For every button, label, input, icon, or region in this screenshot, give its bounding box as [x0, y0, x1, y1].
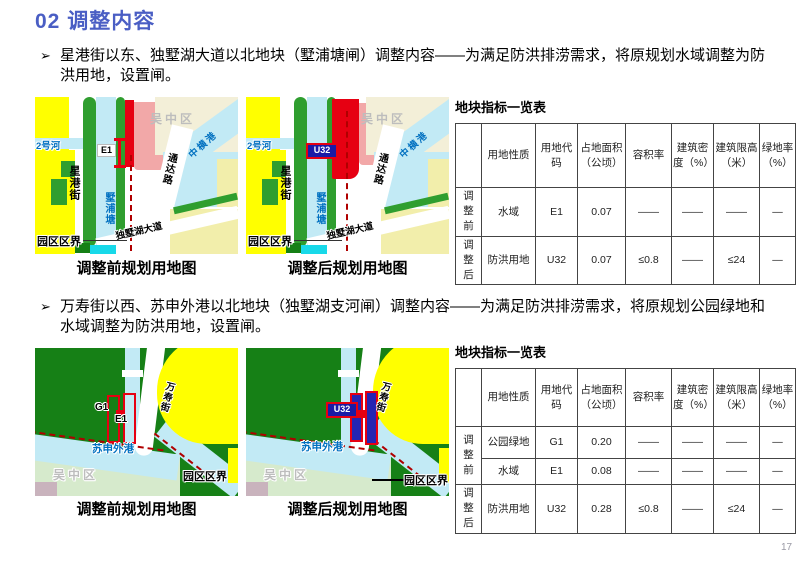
cell-density: —— — [672, 459, 714, 485]
green-band — [294, 97, 307, 247]
shupu-pond-label: 墅浦塘 — [312, 192, 327, 225]
cell-density: —— — [672, 485, 714, 534]
shupu-pond-label: 墅浦塘 — [101, 192, 116, 225]
cell-area: 0.28 — [578, 485, 626, 534]
map-caption: 调整后规划用地图 — [246, 498, 449, 519]
cell-area: 0.20 — [578, 427, 626, 459]
label-connector-line — [83, 240, 127, 241]
cell-density: —— — [672, 427, 714, 459]
plot-code-label: E1 — [97, 144, 116, 157]
gate-marker — [114, 165, 126, 168]
park-boundary-label: 园区区界 — [404, 472, 448, 488]
slide: { "slide": { "title": "02 调整内容", "page_n… — [0, 0, 800, 566]
wuzhong-district-label: 吴中区 — [53, 466, 98, 483]
cyan-water-strip — [90, 245, 116, 254]
header-cell: 用地性质 — [482, 369, 536, 427]
header-cell: 建筑限高（米） — [714, 124, 760, 188]
plot-code-label: G1 — [95, 402, 108, 413]
page-title: 02 调整内容 — [35, 5, 155, 35]
landuse-yellow-block — [228, 448, 238, 483]
indicator-table-2: 地块指标一览表 用地性质 用地代码 占地面积（公顷） 容积率 建筑密度（%） 建… — [455, 342, 796, 534]
green-band — [116, 97, 125, 239]
header-cell: 建筑限高（米） — [714, 369, 760, 427]
xinggang-street-label: 星港街 — [66, 165, 82, 201]
bridge-gap — [338, 370, 359, 377]
plot-code-box: U32 — [326, 402, 358, 418]
cell-code: U32 — [536, 236, 578, 285]
stage-cell: 调整前 — [456, 427, 482, 485]
river2-label: 2号河 — [36, 138, 60, 152]
cell-far: —— — [626, 188, 672, 237]
table-row: 调整前 水域 E1 0.07 —— —— —— — — [456, 188, 796, 237]
map-caption: 调整前规划用地图 — [35, 257, 238, 278]
header-cell: 建筑密度（%） — [672, 369, 714, 427]
header-cell: 占地面积（公顷） — [578, 124, 626, 188]
table-header-row: 用地性质 用地代码 占地面积（公顷） 容积率 建筑密度（%） 建筑限高（米） 绿… — [456, 369, 796, 427]
cell-area: 0.07 — [578, 236, 626, 285]
cell-green: — — [760, 485, 796, 534]
stage-cell: 调整后 — [456, 236, 482, 285]
cell-limit: —— — [714, 427, 760, 459]
stage-text: 调整后 — [463, 238, 475, 284]
header-cell — [456, 369, 482, 427]
header-cell: 用地代码 — [536, 124, 578, 188]
cell-code: E1 — [536, 459, 578, 485]
wuzhong-district-label: 吴中区 — [264, 466, 309, 483]
bullet-2-text: 万寿街以西、苏申外港以北地块（独墅湖支河闸）调整内容——为满足防洪排涝需求，将原… — [40, 297, 778, 337]
cell-density: —— — [672, 188, 714, 237]
map-before-shupu: E1 2号河 星港街 墅浦塘 吴中区 中横港 通达路 独墅湖大道 园区区界 — [35, 97, 238, 254]
cyan-water-strip — [301, 245, 327, 254]
gate-marker — [358, 410, 366, 418]
cell-density: —— — [672, 236, 714, 285]
bridge-gap — [122, 370, 143, 377]
cell-green: — — [760, 459, 796, 485]
header-cell: 用地性质 — [482, 124, 536, 188]
gate-marker — [118, 138, 121, 168]
header-cell: 用地代码 — [536, 369, 578, 427]
cell-far: —— — [626, 427, 672, 459]
cell-limit: —— — [714, 459, 760, 485]
wuzhong-district-label: 吴中区 — [361, 110, 406, 127]
bullet-1: ➢ 星港街以东、独墅湖大道以北地块（墅浦塘闸）调整内容——为满足防洪排涝需求，将… — [40, 46, 778, 86]
cell-far: ≤0.8 — [626, 236, 672, 285]
cell-green: — — [760, 188, 796, 237]
stage-cell: 调整前 — [456, 188, 482, 237]
header-cell — [456, 124, 482, 188]
mauve-block — [246, 482, 268, 496]
park-boundary-label: 园区区界 — [37, 233, 81, 249]
table-title: 地块指标一览表 — [455, 97, 796, 116]
stage-text: 调整前 — [463, 189, 475, 235]
header-cell: 容积率 — [626, 124, 672, 188]
cell-limit: —— — [714, 188, 760, 237]
stage-text: 调整后 — [463, 486, 475, 532]
arrow-bullet-icon: ➢ — [40, 297, 51, 317]
cell-nature: 防洪用地 — [482, 485, 536, 534]
cell-limit: ≤24 — [714, 236, 760, 285]
cell-nature: 防洪用地 — [482, 236, 536, 285]
sushen-canal-label: 苏申外港 — [92, 441, 134, 456]
cell-nature: 水域 — [482, 459, 536, 485]
page-number: 17 — [781, 542, 792, 553]
header-cell: 建筑密度（%） — [672, 124, 714, 188]
stage-cell: 调整后 — [456, 485, 482, 534]
map-caption: 调整后规划用地图 — [246, 257, 449, 278]
map-caption: 调整前规划用地图 — [35, 498, 238, 519]
cell-nature: 公园绿地 — [482, 427, 536, 459]
plot-code-box: U32 — [306, 143, 338, 159]
table-title: 地块指标一览表 — [455, 342, 796, 361]
cell-limit: ≤24 — [714, 485, 760, 534]
park-boundary-label: 园区区界 — [183, 468, 227, 484]
map-after-shupu: U32 2号河 星港街 墅浦塘 吴中区 中横港 通达路 独墅湖大道 园区区界 — [246, 97, 449, 254]
green-patch — [262, 179, 278, 205]
header-cell: 绿地率（%） — [760, 124, 796, 188]
label-connector-line — [372, 479, 404, 481]
cell-nature: 水域 — [482, 188, 536, 237]
header-cell: 占地面积（公顷） — [578, 369, 626, 427]
stage-text: 调整前 — [463, 433, 475, 479]
label-connector-line — [294, 240, 342, 241]
cell-area: 0.08 — [578, 459, 626, 485]
wuzhong-district-label: 吴中区 — [150, 110, 195, 127]
table-row: 调整前 公园绿地 G1 0.20 —— —— —— — — [456, 427, 796, 459]
river2-label: 2号河 — [247, 138, 271, 152]
arrow-bullet-icon: ➢ — [40, 46, 51, 66]
table-row: 调整后 防洪用地 U32 0.28 ≤0.8 —— ≤24 — — [456, 485, 796, 534]
table-row: 水域 E1 0.08 —— —— —— — — [456, 459, 796, 485]
cell-far: —— — [626, 459, 672, 485]
table-row: 调整后 防洪用地 U32 0.07 ≤0.8 —— ≤24 — — [456, 236, 796, 285]
cell-area: 0.07 — [578, 188, 626, 237]
sushen-canal-label: 苏申外港 — [301, 439, 343, 454]
bullet-2: ➢ 万寿街以西、苏申外港以北地块（独墅湖支河闸）调整内容——为满足防洪排涝需求，… — [40, 297, 778, 337]
header-cell: 容积率 — [626, 369, 672, 427]
mauve-block — [35, 482, 57, 496]
indicator-table-1: 地块指标一览表 用地性质 用地代码 占地面积（公顷） 容积率 建筑密度（%） 建… — [455, 97, 796, 285]
table-header-row: 用地性质 用地代码 占地面积（公顷） 容积率 建筑密度（%） 建筑限高（米） 绿… — [456, 124, 796, 188]
park-boundary-label: 园区区界 — [248, 233, 292, 249]
cell-green: — — [760, 427, 796, 459]
green-band — [83, 97, 96, 247]
map-after-sushen: U32 万寿街 苏申外港 吴中区 园区区界 — [246, 348, 449, 496]
map-before-sushen: G1 E1 万寿街 苏申外港 吴中区 园区区界 — [35, 348, 238, 496]
cell-green: — — [760, 236, 796, 285]
xinggang-street-label: 星港街 — [277, 165, 293, 201]
header-cell: 绿地率（%） — [760, 369, 796, 427]
cell-code: E1 — [536, 188, 578, 237]
bullet-1-text: 星港街以东、独墅湖大道以北地块（墅浦塘闸）调整内容——为满足防洪排涝需求，将原规… — [40, 46, 778, 86]
cell-code: G1 — [536, 427, 578, 459]
cell-far: ≤0.8 — [626, 485, 672, 534]
cell-code: U32 — [536, 485, 578, 534]
green-patch — [51, 179, 67, 205]
plot-code-label: E1 — [115, 414, 127, 425]
